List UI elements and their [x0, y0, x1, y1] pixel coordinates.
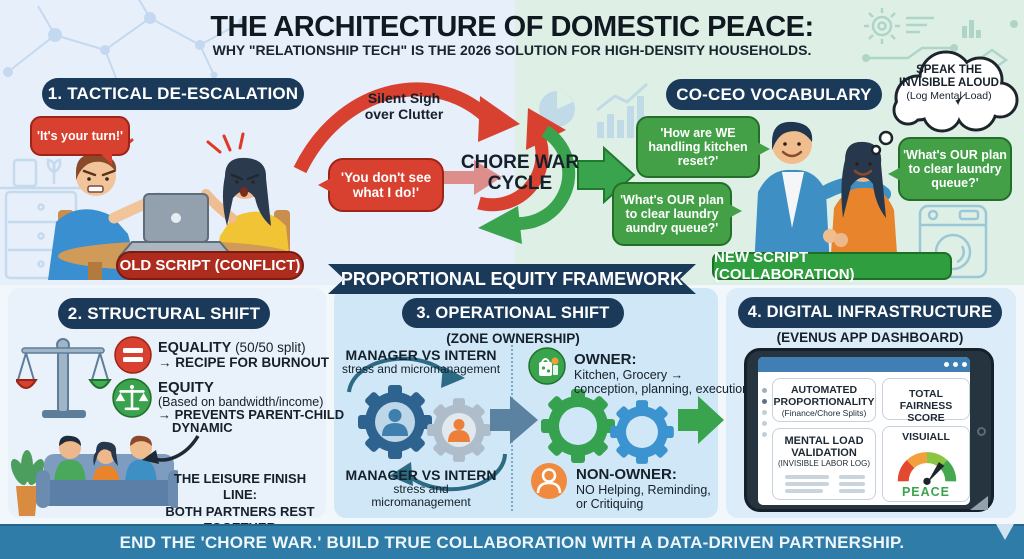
bubble-line: 'You don't see — [341, 170, 431, 185]
owner-title: OWNER: — [574, 351, 637, 368]
nonowner-title: NON-OWNER: — [576, 466, 677, 483]
infographic-canvas: THE ARCHITECTURE OF DOMESTIC PEACE: WHY … — [0, 0, 1024, 559]
cloud-text: SPEAK THE INVISIBLE ALOUD (Log Mental Lo… — [888, 64, 1010, 103]
bubble-line: 'What's OUR plan — [620, 193, 724, 207]
footer-text: END THE 'CHORE WAR.' BUILD TRUE COLLABOR… — [120, 533, 905, 553]
section4-subheader: (EVENUS APP DASHBOARD) — [738, 330, 1002, 346]
placeholder-line — [785, 482, 829, 486]
equity-icon — [112, 378, 152, 418]
old-script-label: OLD SCRIPT (CONFLICT) — [116, 251, 304, 280]
nonowner-icon — [530, 462, 568, 500]
page-indicator-dots — [762, 388, 767, 437]
cycle-label-line: CYCLE — [455, 174, 585, 195]
ribbon-text: PROPORTIONAL EQUITY FRAMEWORK — [341, 269, 683, 290]
result-arrow — [678, 396, 724, 444]
gauge-value: PEACE — [883, 485, 969, 499]
speech-bubble-kitchen-reset: 'How are WE handling kitchen reset?' — [636, 116, 760, 178]
section2-header-pill: 2. STRUCTURAL SHIFT — [58, 298, 270, 329]
zone-gear-icon — [610, 400, 674, 464]
bubble-line: reset?' — [678, 154, 719, 168]
transition-arrow — [490, 396, 538, 444]
footer-corner-accent — [996, 524, 1014, 540]
owner-gear-icon — [541, 389, 615, 463]
curved-pointer-arrow — [140, 432, 202, 468]
bubble-tail — [318, 178, 331, 192]
cloud-line: INVISIBLE ALOUD — [888, 77, 1010, 90]
card-subtitle: (Finance/Chore Splits) — [773, 408, 875, 418]
topbar-dots-icon — [944, 362, 967, 367]
footer-banner: END THE 'CHORE WAR.' BUILD TRUE COLLABOR… — [0, 524, 1024, 559]
silent-sigh-annotation: Silent Sigh over Clutter — [338, 90, 470, 122]
bubble-line: to clear laundry — [625, 207, 718, 221]
card-subtitle: (INVISIBLE LABOR LOG) — [773, 459, 875, 468]
placeholder-line — [839, 482, 865, 486]
equality-suffix: (50/50 split) — [231, 340, 305, 355]
card-title-line: AUTOMATED — [773, 384, 875, 396]
bubble-line: to clear laundry — [908, 162, 1001, 176]
equality-title: EQUALITY — [158, 340, 231, 356]
manager-top-sub: stress and micromanagement — [336, 363, 506, 377]
tablet-corner-fold — [970, 496, 988, 510]
placeholder-line — [785, 475, 829, 479]
bubble-line: 'What's OUR plan — [903, 148, 1007, 162]
card-title-line: VALIDATION — [773, 447, 875, 459]
tablet-topbar — [758, 357, 970, 372]
cloud-line: SPEAK THE — [888, 64, 1010, 77]
new-script-text: NEW SCRIPT (COLLABORATION) — [714, 249, 950, 283]
card-title-line: TOTAL FAIRNESS — [883, 388, 969, 412]
section3-subheader: (ZONE OWNERSHIP) — [402, 331, 624, 347]
section4-header-pill: 4. DIGITAL INFRASTRUCTURE — [738, 297, 1002, 328]
equality-result: → RECIPE FOR BURNOUT — [158, 355, 329, 371]
intern-gear-icon — [427, 398, 491, 462]
bubble-tail — [729, 204, 742, 218]
bubble-tail — [100, 153, 112, 165]
equality-icon — [114, 336, 152, 374]
gauge-title: VISUIALL — [883, 431, 969, 443]
manager-top-title: MANAGER VS INTERN — [340, 347, 502, 363]
grocery-owner-icon — [528, 347, 566, 385]
equity-title: EQUITY — [158, 379, 214, 396]
bubble-line: 'How are WE — [660, 126, 735, 140]
equity-result-line2: DYNAMIC — [172, 421, 233, 436]
speech-bubble-you-dont-see: 'You don't see what I do!' — [328, 158, 444, 212]
framework-ribbon: PROPORTIONAL EQUITY FRAMEWORK — [328, 264, 696, 294]
placeholder-line — [839, 489, 865, 493]
coceo-header-pill: CO-CEO VOCABULARY — [666, 79, 882, 110]
page-title: THE ARCHITECTURE OF DOMESTIC PEACE: — [0, 11, 1024, 44]
speech-bubble-its-your-turn: 'It's your turn!' — [30, 116, 130, 156]
nonowner-line1: NO Helping, Reminding, — [576, 483, 711, 497]
card-title-line: PROPORTIONALITY — [773, 396, 875, 408]
leisure-line: THE LEISURE FINISH LINE: — [164, 471, 316, 504]
card-automated-proportionality: AUTOMATED PROPORTIONALITY (Finance/Chore… — [772, 378, 876, 422]
bubble-tail — [888, 167, 901, 181]
section1-header-pill: 1. TACTICAL DE-ESCALATION — [42, 78, 304, 110]
bubble-line: handling kitchen — [648, 140, 747, 154]
speech-bubble-laundry-right: 'What's OUR plan to clear laundry queue?… — [898, 137, 1012, 201]
annotation-line: Silent Sigh — [338, 90, 470, 106]
tablet-camera-icon — [977, 427, 986, 436]
nonowner-line2: or Critiquing — [576, 497, 643, 511]
card-mental-load-validation: MENTAL LOAD VALIDATION (INVISIBLE LABOR … — [772, 428, 876, 500]
speech-bubble-laundry-left: 'What's OUR plan to clear laundry aundry… — [612, 182, 732, 246]
placeholder-line — [785, 489, 823, 493]
card-total-fairness-score: TOTAL FAIRNESS SCORE — [882, 378, 970, 420]
bubble-line: what I do!' — [353, 185, 419, 200]
owner-line2: conception, planning, execution — [574, 382, 749, 396]
bubble-text: 'It's your turn!' — [37, 129, 123, 143]
manager-gear-icon — [358, 385, 432, 459]
placeholder-line — [839, 475, 865, 479]
card-visual-gauge: VISUIALL PEACE — [882, 426, 970, 502]
old-script-text: OLD SCRIPT (CONFLICT) — [120, 257, 301, 274]
bubble-line: aundry queue?' — [626, 221, 719, 235]
new-script-label: NEW SCRIPT (COLLABORATION) — [712, 252, 952, 280]
fairness-gauge-icon — [889, 443, 965, 485]
leisure-line: BOTH PARTNERS REST — [164, 504, 316, 520]
owner-line1: Kitchen, Grocery → — [574, 368, 683, 382]
card-title-line: MENTAL LOAD — [773, 435, 875, 447]
balance-scale-illustration — [16, 328, 112, 420]
annotation-line: over Clutter — [338, 106, 470, 122]
card-title-line: SCORE — [883, 412, 969, 424]
bubble-tail — [757, 142, 770, 156]
cycle-label-line: CHORE WAR — [455, 153, 585, 174]
manager-bottom-sub2: micromanagement — [340, 496, 502, 510]
chore-war-cycle-label: CHORE WAR CYCLE — [455, 153, 585, 195]
section3-header-pill: 3. OPERATIONAL SHIFT — [402, 298, 624, 328]
manager-bottom-title: MANAGER VS INTERN — [340, 467, 502, 483]
bubble-line: queue?' — [931, 176, 978, 190]
cloud-line: (Log Mental Load) — [888, 90, 1010, 102]
